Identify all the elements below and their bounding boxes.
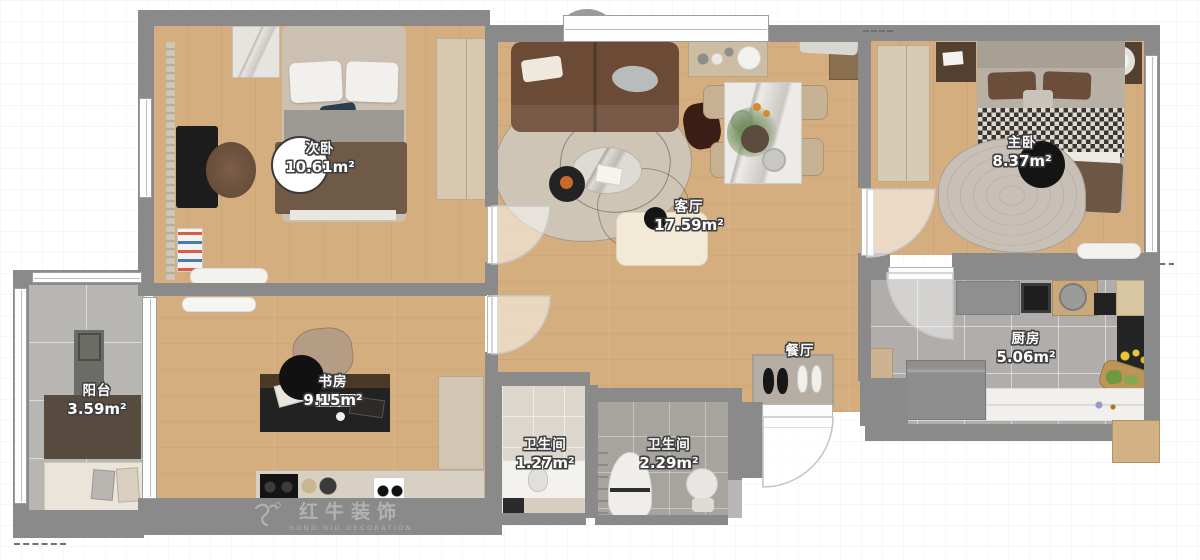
window — [32, 272, 142, 283]
island-counter — [986, 388, 1146, 421]
decor-figure — [116, 467, 140, 502]
serving-plate — [737, 46, 761, 70]
label-backdrop-dot — [644, 207, 667, 230]
door-master-bedroom — [861, 188, 874, 256]
towel-rack — [598, 452, 608, 514]
tub-bar — [610, 488, 650, 492]
wash-basin — [528, 468, 548, 492]
tissue-box — [942, 51, 963, 66]
wall — [595, 515, 728, 525]
balcony-study-window — [142, 297, 157, 499]
dashed-guide — [1160, 263, 1174, 265]
window — [1145, 55, 1158, 253]
door-kitchen — [888, 267, 954, 280]
mouse — [336, 412, 345, 421]
window — [139, 98, 152, 198]
kitchen-cabinet — [956, 281, 1020, 315]
door-secondary-bedroom — [487, 206, 498, 264]
ac-unit — [182, 297, 256, 312]
wall — [585, 385, 598, 518]
wall — [138, 10, 490, 26]
slipper-black — [777, 368, 788, 394]
wall — [502, 513, 586, 525]
wall — [860, 25, 1160, 41]
slipper-white — [797, 365, 808, 393]
watermark-text: 红牛装饰 HONG NIU DECORATION — [289, 503, 413, 532]
wall — [860, 378, 908, 426]
wire-chair — [78, 333, 101, 361]
wall — [590, 388, 742, 402]
sink — [1059, 283, 1087, 311]
desk-chair-black — [279, 355, 324, 400]
book-rack — [177, 228, 203, 272]
wall — [485, 352, 498, 500]
wall — [13, 510, 144, 538]
wall — [138, 283, 487, 296]
counter-cooktop — [260, 474, 298, 500]
toilet-stool — [686, 468, 718, 500]
watermark: 红牛装饰 HONG NIU DECORATION — [252, 501, 413, 533]
nightstand-marble — [232, 26, 280, 78]
bed-pillow — [289, 61, 343, 104]
contour-rug — [938, 138, 1086, 253]
cooktop — [1021, 283, 1051, 313]
bed-foot-runner — [290, 210, 396, 220]
flower-orange — [753, 103, 761, 111]
bed-pillow — [345, 61, 398, 103]
wall — [742, 402, 763, 478]
wall — [728, 400, 742, 480]
wardrobe — [877, 45, 930, 182]
wall — [858, 41, 871, 188]
dashed-guide — [14, 543, 66, 545]
wall — [858, 253, 871, 381]
refrigerator — [906, 360, 986, 420]
window — [563, 15, 769, 42]
flower-orange — [763, 110, 770, 117]
wall — [485, 25, 498, 207]
wardrobe — [436, 38, 488, 200]
slipper-black — [763, 368, 774, 394]
balcony-table — [44, 395, 141, 459]
wall — [728, 480, 742, 518]
door-study — [487, 296, 498, 354]
utility-block — [1112, 420, 1160, 463]
slipper-white — [811, 365, 822, 393]
door-entry — [762, 404, 833, 428]
headboard — [977, 38, 1125, 68]
counter-jars — [300, 474, 346, 498]
dashed-guide — [863, 30, 893, 32]
plant-pot — [741, 125, 769, 153]
watermark-tagline: HONG NIU DECORATION — [289, 524, 413, 532]
hongniu-bull-logo-icon — [252, 501, 282, 533]
study-cabinet — [438, 376, 484, 470]
wall — [1144, 267, 1160, 425]
label-backdrop-white — [271, 136, 329, 194]
stool-tray — [560, 176, 573, 189]
appliance-black — [1094, 293, 1116, 315]
watermark-brand: 红牛装饰 — [299, 503, 403, 522]
vegetables — [1124, 375, 1138, 385]
window — [14, 288, 27, 504]
curtain — [166, 42, 175, 280]
floor-plan-canvas: 次卧 10.61m² 客厅 17.59m² 主卧 8.37m² 厨房 5.06m… — [0, 0, 1200, 560]
stool-base — [692, 498, 714, 512]
bench — [1077, 243, 1141, 259]
label-backdrop-black — [1018, 141, 1065, 188]
wall — [487, 372, 590, 386]
decor-frame — [91, 469, 116, 501]
rug-oval — [206, 142, 256, 198]
small-pillow — [1023, 90, 1053, 108]
